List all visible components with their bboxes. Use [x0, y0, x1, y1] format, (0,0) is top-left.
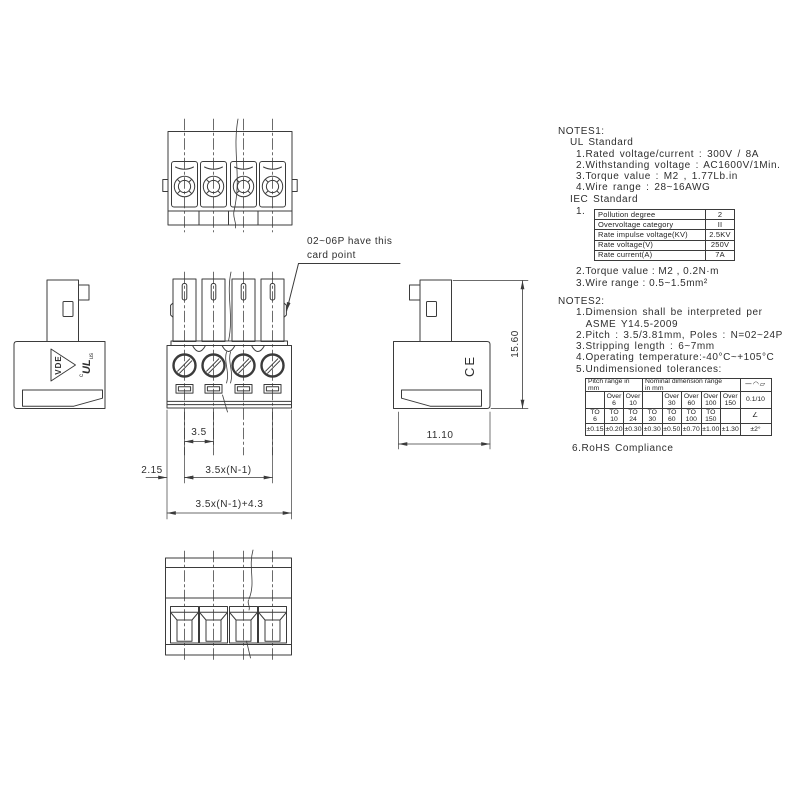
- ul-logo-c: c: [79, 374, 85, 377]
- notes2-item: 3.Stripping length : 6~7mm: [558, 341, 800, 352]
- rohs-note: 6.RoHS Compliance: [572, 443, 673, 454]
- card-point-annotation: 02~06P have this card point: [307, 235, 447, 262]
- iec-cell-value: II: [706, 220, 735, 230]
- table-row: Pollution degree 2: [595, 210, 735, 220]
- iec-standard-heading: IEC Standard: [558, 194, 800, 205]
- drawing-sheet: 02~06P have this card point 3.5 2.15 3.5…: [0, 0, 800, 800]
- iec-cell-label: Rate current(A): [595, 250, 706, 260]
- dim-depth-label: 11.10: [410, 430, 470, 441]
- tol-cell: Over 6: [605, 392, 624, 409]
- ul-item: 1.Rated voltage/current : 300V / 8A: [558, 149, 800, 160]
- tol-cell: TO 150: [702, 409, 722, 424]
- iec-cell-label: Pollution degree: [595, 210, 706, 220]
- tol-cell: TO 6: [586, 409, 605, 424]
- tol-value: ±0.70: [682, 424, 702, 435]
- tol-cell: TO 24: [624, 409, 643, 424]
- tol-header-pitch: Pitch range in mm: [586, 379, 643, 392]
- tol-cell: [586, 392, 605, 409]
- table-row: Overvoltage category II: [595, 220, 735, 230]
- tol-cell: Over 100: [702, 392, 722, 409]
- iec-spec-table: Pollution degree 2 Overvoltage category …: [594, 209, 735, 261]
- tol-value: ±0.20: [605, 424, 624, 435]
- tol-value: ±0.30: [624, 424, 643, 435]
- iec-cell-value: 2: [706, 210, 735, 220]
- iec-item: 2.Torque value : M2 , 0.2N·m: [576, 266, 719, 277]
- notes2-section: NOTES2: 1.Dimension shall be interpreted…: [558, 296, 800, 375]
- tol-angle-value: ±2°: [741, 424, 771, 435]
- tol-cell: TO 10: [605, 409, 624, 424]
- tol-header-symbols: —◠▱: [741, 379, 771, 392]
- tol-cell: TO 30: [643, 409, 663, 424]
- ul-item: 4.Wire range : 28~16AWG: [558, 182, 800, 193]
- tol-cell: [721, 409, 741, 424]
- vde-logo: VDE: [52, 347, 64, 383]
- ul-item: 3.Torque value : M2 , 1.77Lb.in: [558, 171, 800, 182]
- ul-logo-main: UL: [81, 359, 93, 374]
- break-line: [234, 119, 238, 228]
- notes2-item: 5.Undimensioned tolerances:: [558, 364, 800, 375]
- front-view: [146, 264, 400, 520]
- notes1-title: NOTES1:: [558, 126, 800, 137]
- tol-cell: Over 150: [721, 392, 741, 409]
- ul-logo: c UL us: [79, 347, 95, 383]
- tol-value: ±0.30: [643, 424, 663, 435]
- notes2-item: 1.Dimension shall be interpreted per ASM…: [558, 307, 800, 330]
- dim-left-margin-label: 2.15: [137, 465, 167, 476]
- tol-value: ±0.15: [586, 424, 605, 435]
- iec-cell-label: Overvoltage category: [595, 220, 706, 230]
- tol-value: ±0.50: [663, 424, 683, 435]
- iec-cell-value: 2.5KV: [706, 230, 735, 240]
- notes2-title: NOTES2:: [558, 296, 800, 307]
- iec-cell-label: Rate voltage(V): [595, 240, 706, 250]
- ul-standard-heading: UL Standard: [558, 137, 800, 148]
- ce-logo: CE: [461, 352, 477, 380]
- tol-cell: Over 30: [663, 392, 683, 409]
- table-row: Rate impulse voltage(KV) 2.5KV: [595, 230, 735, 240]
- notes1-section: NOTES1: UL Standard 1.Rated voltage/curr…: [558, 126, 800, 205]
- dim-pitch-span-label: 3.5x(N-1): [182, 465, 275, 476]
- tol-value: ±1.00: [702, 424, 722, 435]
- tol-cell: TO 100: [682, 409, 702, 424]
- tol-straightness: 0.1/10: [741, 392, 771, 409]
- tol-header-nominal: Nominal dimension range in mm: [643, 379, 741, 392]
- top-view: [163, 119, 297, 232]
- tol-cell: Over 10: [624, 392, 643, 409]
- iec-item: 3.Wire range : 0.5~1.5mm²: [576, 278, 708, 289]
- dim-total-width-label: 3.5x(N-1)+4.3: [167, 499, 292, 510]
- notes2-item: 2.Pitch : 3.5/3.81mm, Poles : N=02~24P: [558, 330, 800, 341]
- table-row: Rate voltage(V) 250V: [595, 240, 735, 250]
- ul-item: 2.Withstanding voltage : AC1600V/1Min.: [558, 160, 800, 171]
- card-point-leader: [287, 264, 400, 312]
- table-row: Rate current(A) 7A: [595, 250, 735, 260]
- tol-cell: Over 60: [682, 392, 702, 409]
- left-side-view: [14, 280, 105, 409]
- dim-pitch-label: 3.5: [184, 427, 214, 438]
- tol-cell: [643, 392, 663, 409]
- dim-height-label: 15.60: [510, 319, 522, 369]
- notes2-item: 4.Operating temperature:-40°C~+105°C: [558, 352, 800, 363]
- iec-cell-label: Rate impulse voltage(KV): [595, 230, 706, 240]
- tol-value: ±1.30: [721, 424, 741, 435]
- ul-logo-us: us: [89, 353, 95, 359]
- iec-item1-label: 1.: [576, 206, 585, 217]
- iec-cell-value: 7A: [706, 250, 735, 260]
- tolerance-table: Pitch range in mm Nominal dimension rang…: [585, 378, 772, 436]
- tol-angle-symbol: ∠: [741, 409, 771, 424]
- iec-cell-value: 250V: [706, 240, 735, 250]
- tol-cell: TO 60: [663, 409, 683, 424]
- bottom-view: [166, 550, 292, 661]
